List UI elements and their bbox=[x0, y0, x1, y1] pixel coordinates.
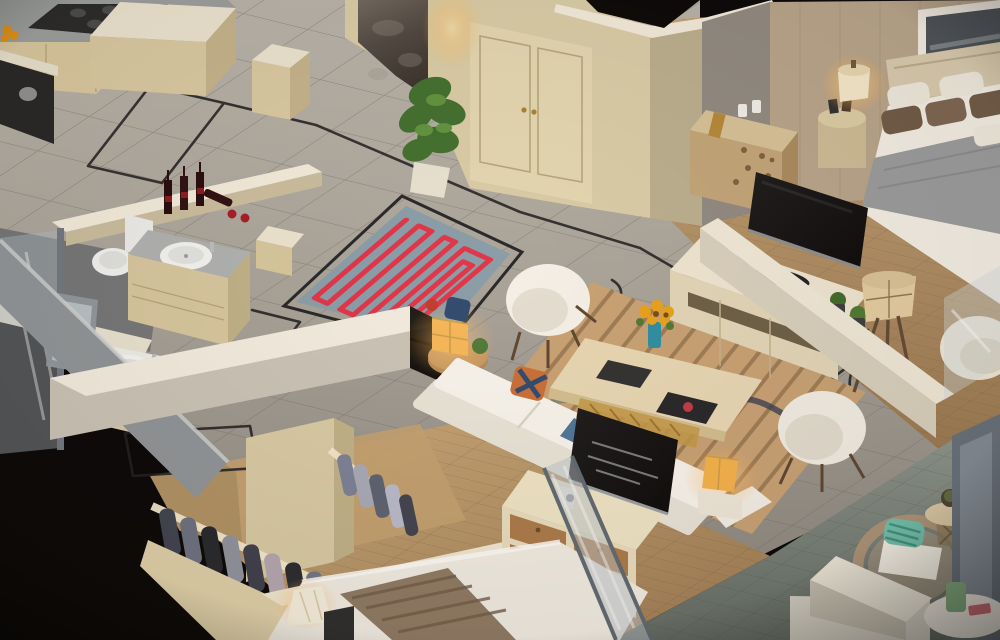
apartment-render bbox=[0, 0, 1000, 640]
vignette bbox=[0, 0, 1000, 640]
